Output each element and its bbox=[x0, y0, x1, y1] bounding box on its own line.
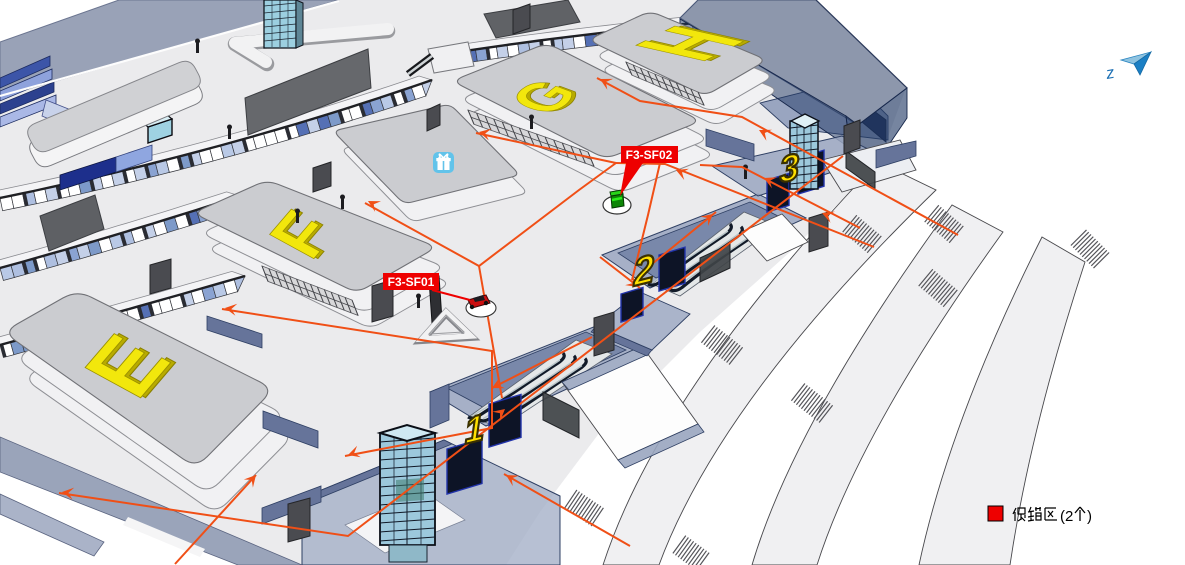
svg-text:F3-SF01: F3-SF01 bbox=[388, 275, 435, 289]
svg-text:3: 3 bbox=[779, 145, 800, 191]
svg-text:1: 1 bbox=[464, 406, 485, 452]
svg-text:(2: (2 bbox=[1060, 508, 1073, 525]
svg-text:): ) bbox=[1087, 508, 1092, 525]
svg-text:F3-SF02: F3-SF02 bbox=[626, 148, 673, 162]
svg-text:2: 2 bbox=[632, 247, 655, 296]
